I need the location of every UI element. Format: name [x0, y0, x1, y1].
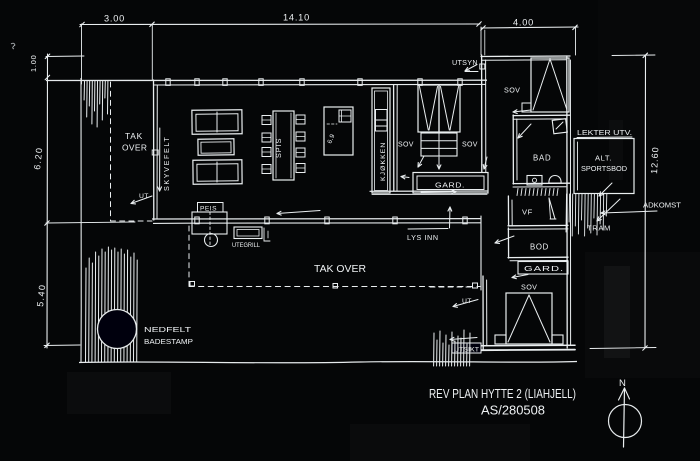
- svg-text:VF: VF: [522, 208, 533, 217]
- svg-text:REV PLAN HYTTE 2 (LIAHJELL): REV PLAN HYTTE 2 (LIAHJELL): [429, 387, 576, 401]
- svg-text:SPIS: SPIS: [274, 138, 283, 158]
- svg-text:12.60: 12.60: [649, 146, 660, 174]
- svg-text:14.10: 14.10: [283, 13, 310, 23]
- svg-text:UTEGRILL: UTEGRILL: [232, 242, 261, 249]
- svg-text:BOD: BOD: [530, 243, 549, 252]
- svg-text:BADESTAMP: BADESTAMP: [144, 337, 193, 346]
- svg-text:3.00: 3.00: [104, 14, 125, 24]
- svg-text:OVER: OVER: [122, 143, 147, 153]
- svg-text:TAK OVER: TAK OVER: [314, 264, 366, 275]
- svg-text:SPORTSBOD: SPORTSBOD: [581, 164, 627, 173]
- svg-text:SKYVEFELT: SKYVEFELT: [162, 136, 171, 191]
- svg-text:NEDFELT: NEDFELT: [144, 325, 191, 334]
- svg-text:LEKTER UTV.: LEKTER UTV.: [577, 128, 632, 137]
- svg-text:TRAM: TRAM: [587, 224, 611, 233]
- svg-text:PEIS: PEIS: [200, 206, 217, 213]
- svg-text:SOV: SOV: [462, 142, 478, 149]
- svg-text:AS/280508: AS/280508: [481, 404, 545, 418]
- svg-text:N: N: [619, 378, 626, 389]
- svg-text:LYS INN: LYS INN: [407, 233, 439, 242]
- svg-text:TAK: TAK: [125, 131, 143, 141]
- svg-text:GARD.: GARD.: [435, 181, 465, 190]
- svg-text:GARD.: GARD.: [524, 264, 564, 273]
- svg-text:1.00: 1.00: [29, 54, 38, 72]
- svg-text:BAD: BAD: [533, 154, 551, 163]
- svg-text:SOV: SOV: [504, 86, 520, 95]
- svg-text:ALT.: ALT.: [595, 154, 612, 163]
- svg-text:SOV: SOV: [398, 142, 414, 149]
- svg-text:SOV: SOV: [521, 283, 537, 292]
- svg-text:KJØKKEN: KJØKKEN: [380, 142, 387, 181]
- svg-text:4.00: 4.00: [513, 18, 534, 28]
- svg-text:ADKOMST: ADKOMST: [643, 201, 682, 210]
